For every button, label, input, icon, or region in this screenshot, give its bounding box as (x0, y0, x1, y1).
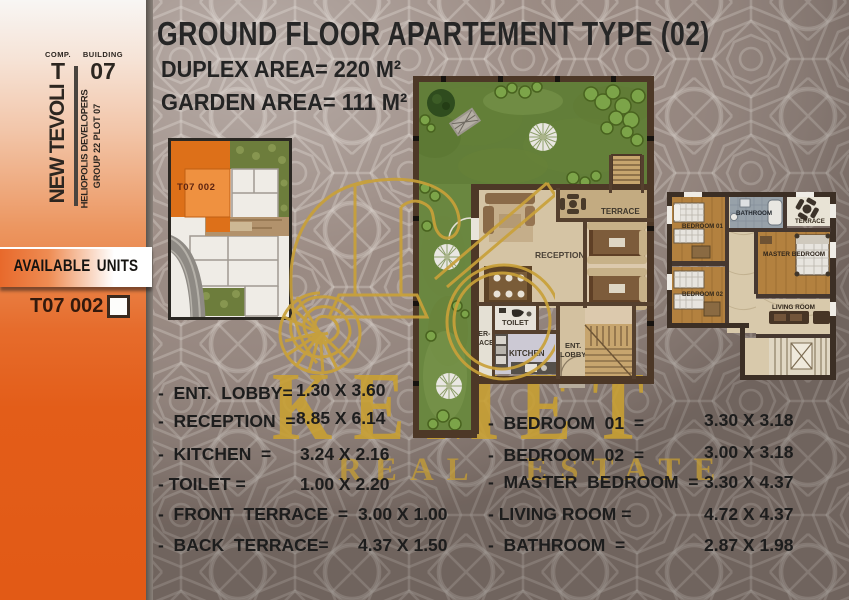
svg-text:LIVING ROOM: LIVING ROOM (772, 304, 815, 311)
svg-text:MASTER BEDROOM: MASTER BEDROOM (763, 251, 825, 258)
svg-text:BEDROOM 02: BEDROOM 02 (682, 291, 723, 298)
svg-text:TERRACE: TERRACE (601, 207, 640, 216)
svg-text:BATHROOM: BATHROOM (736, 210, 772, 217)
svg-text:LOBBY: LOBBY (560, 350, 586, 359)
svg-text:ENT.: ENT. (565, 341, 581, 350)
svg-text:TERRACE: TERRACE (795, 218, 825, 225)
svg-text:BEDROOM 01: BEDROOM 01 (682, 223, 723, 230)
svg-text:T07 002: T07 002 (177, 182, 215, 193)
